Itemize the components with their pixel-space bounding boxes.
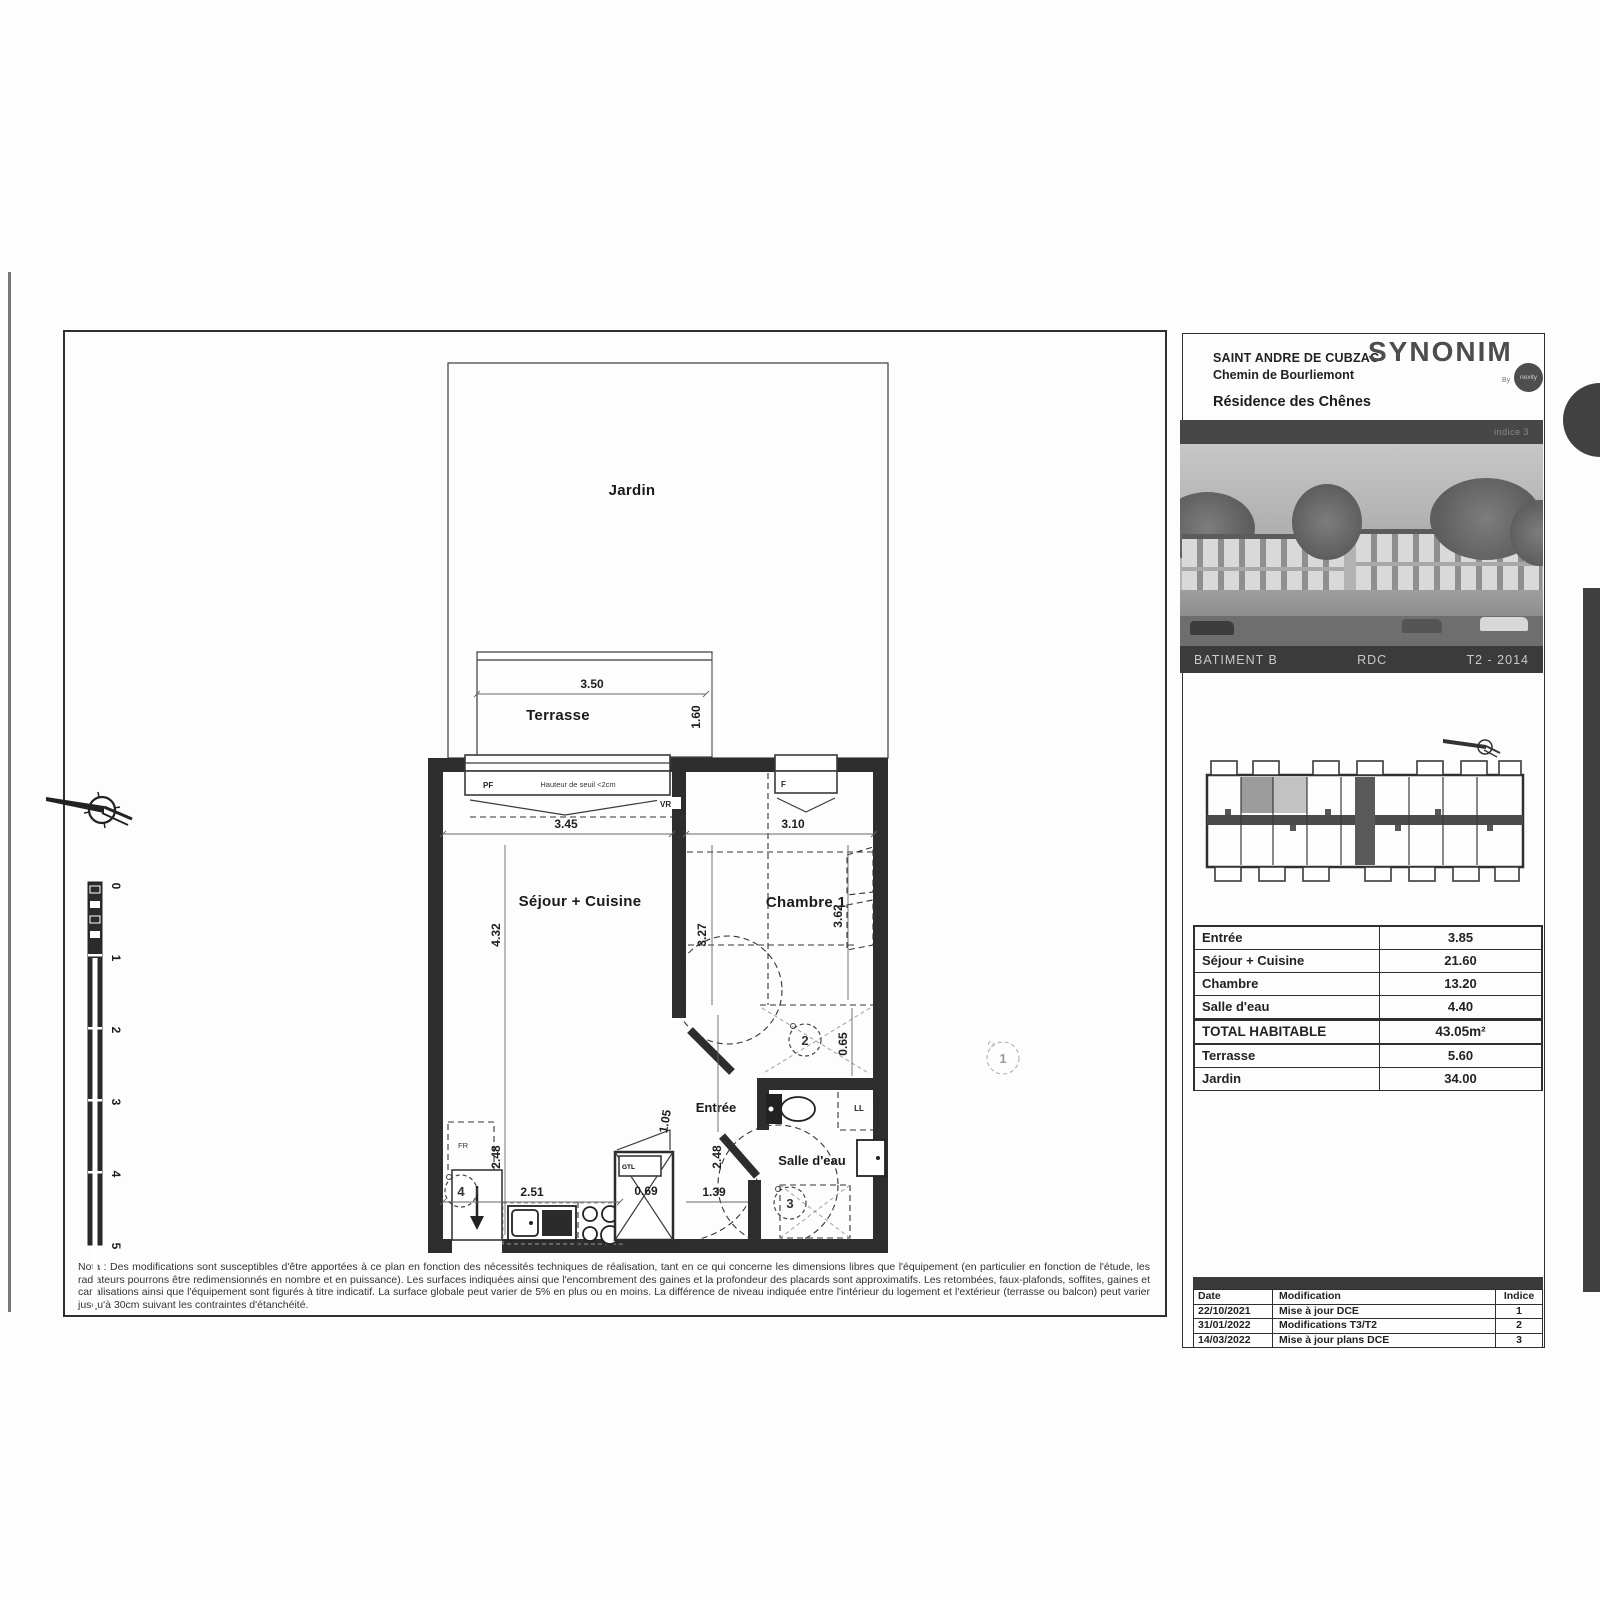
level-label: RDC [1357, 653, 1387, 667]
jardin-label: Jardin [609, 482, 656, 499]
dim-hall-height: 2.48 [710, 1145, 724, 1169]
turning-circle [674, 936, 782, 1044]
dim-hall-width: 1.39 [702, 1185, 726, 1199]
scale-tick: 4 [109, 1171, 123, 1178]
room-area: 13.20 [1380, 973, 1541, 995]
rev-indice: 3 [1496, 1334, 1542, 1348]
dim-gtl-width: 0.69 [634, 1184, 658, 1198]
pf-label: PF [483, 781, 493, 790]
dim-hall-diagonal: 1.05 [656, 1108, 674, 1134]
gtl-label: GTL [622, 1164, 635, 1171]
revision-row: 31/01/2022 Modifications T3/T2 2 [1193, 1319, 1543, 1334]
table-row: Terrasse 5.60 [1193, 1045, 1543, 1068]
table-row: Séjour + Cuisine 21.60 [1193, 950, 1543, 973]
fridge-slot: FR [448, 1122, 494, 1170]
photo-lawn [1180, 590, 1543, 618]
washbasin [857, 1140, 885, 1176]
table-row: Entrée 3.85 [1193, 927, 1543, 950]
rev-modification: Modifications T3/T2 [1273, 1319, 1496, 1333]
rev-date: 22/10/2021 [1194, 1305, 1273, 1319]
project-city: SAINT ANDRE DE CUBZAC [1213, 351, 1379, 365]
fr-label: FR [458, 1141, 469, 1150]
dim-chambre-width: 3.10 [781, 817, 805, 831]
marker-1-number: 1 [999, 1051, 1006, 1066]
col-indice: Indice [1496, 1290, 1542, 1304]
marker-4-number: 4 [457, 1184, 465, 1199]
room-area: 5.60 [1380, 1045, 1541, 1067]
ll-label: LL [854, 1104, 864, 1113]
sejour-label: Séjour + Cuisine [519, 893, 642, 910]
jardin-area: Jardin [448, 363, 888, 758]
brand-logo-text: SYNONIM [1368, 336, 1513, 368]
rev-indice: 2 [1496, 1319, 1542, 1333]
rev-modification: Mise à jour DCE [1273, 1305, 1496, 1319]
dim-kitchen-height: 2.48 [489, 1145, 503, 1169]
room-area: 21.60 [1380, 950, 1541, 972]
residence-name: Résidence des Chênes [1213, 394, 1371, 410]
room-name: Entrée [1195, 927, 1380, 949]
col-date: Date [1194, 1290, 1273, 1304]
photo-top-strip: indice 3 [1180, 420, 1543, 444]
marker-1: 1 [987, 1042, 1019, 1075]
table-row: Jardin 34.00 [1193, 1068, 1543, 1091]
salle-deau-label: Salle d'eau [778, 1153, 845, 1168]
key-plan-highlighted-unit [1241, 777, 1273, 813]
total-label: TOTAL HABITABLE [1195, 1021, 1380, 1043]
terrasse-label: Terrasse [526, 707, 590, 724]
unit-label: T2 - 2014 [1466, 653, 1529, 667]
rev-date: 31/01/2022 [1194, 1319, 1273, 1333]
room-name: Chambre [1195, 973, 1380, 995]
floor-plan-drawing: 0 1 2 3 4 5 Jardin Terrasse 3.50 1.60 [0, 0, 1165, 1600]
north-arrow-icon [46, 792, 132, 828]
vr-label: VR [660, 800, 671, 809]
scale-tick: 3 [109, 1099, 123, 1106]
photo-indice-label: indice 3 [1494, 427, 1543, 437]
room-name: Jardin [1195, 1068, 1380, 1090]
building-photo: indice 3 BATIMENT B RDC T2 - 2014 [1180, 420, 1543, 673]
table-row: Chambre 13.20 [1193, 973, 1543, 996]
scale-tick: 2 [109, 1027, 123, 1034]
scale-tick: 0 [109, 883, 123, 890]
room-name: Séjour + Cuisine [1195, 950, 1380, 972]
wardrobe [847, 847, 873, 895]
table-row-total: TOTAL HABITABLE 43.05m² [1193, 1019, 1543, 1045]
revision-header-row: Date Modification Indice [1193, 1290, 1543, 1305]
room-area: 4.40 [1380, 996, 1541, 1018]
terrasse-area: Terrasse 3.50 1.60 [474, 652, 712, 757]
window-f: F [775, 755, 837, 812]
revision-table-top-bar [1193, 1277, 1543, 1289]
scale-tick: 1 [109, 955, 123, 962]
dim-kitchen-width: 2.51 [520, 1185, 544, 1199]
area-table: Entrée 3.85 Séjour + Cuisine 21.60 Chamb… [1193, 925, 1543, 1091]
scan-ink-blob [1563, 383, 1600, 457]
scale-bar: 0 1 2 3 4 5 [88, 882, 123, 1308]
project-street: Chemin de Bourliemont [1213, 368, 1354, 382]
rev-date: 14/03/2022 [1194, 1334, 1273, 1348]
room-area: 34.00 [1380, 1068, 1541, 1090]
marker-2: 2 [789, 1024, 821, 1057]
scanned-floor-plan-sheet: SAINT ANDRE DE CUBZAC Chemin de Bourliem… [0, 0, 1600, 1600]
marker-3: 3 [774, 1187, 806, 1220]
rev-modification: Mise à jour plans DCE [1273, 1334, 1496, 1348]
photo-car [1480, 617, 1528, 631]
key-plan [1195, 715, 1535, 895]
revision-table: Date Modification Indice 22/10/2021 Mise… [1193, 1289, 1543, 1348]
f-label: F [781, 780, 786, 789]
marker-2-number: 2 [801, 1033, 808, 1048]
marker-3-number: 3 [786, 1196, 793, 1211]
seuil-label: Hauteur de seuil <2cm [540, 780, 615, 789]
col-modification: Modification [1273, 1290, 1496, 1304]
photo-tree [1292, 484, 1362, 560]
table-row: Salle d'eau 4.40 [1193, 996, 1543, 1019]
dim-terrasse-depth: 1.60 [689, 705, 703, 729]
scan-shadow-band [1583, 588, 1600, 1292]
brand-by-label: By [1502, 377, 1510, 384]
rev-indice: 1 [1496, 1305, 1542, 1319]
photo-car [1190, 621, 1234, 635]
key-plan-compass-icon [1443, 739, 1500, 757]
scale-tick: 5 [109, 1243, 123, 1250]
room-area: 3.85 [1380, 927, 1541, 949]
dim-sejour-height: 4.32 [489, 923, 503, 947]
entrance-door [452, 1170, 502, 1240]
window-pf: PF Hauteur de seuil <2cm VR [465, 755, 690, 817]
nexity-logo: nexity [1514, 363, 1543, 392]
entree-label: Entrée [696, 1100, 736, 1115]
photo-car [1402, 619, 1442, 633]
dim-terrasse-width: 3.50 [580, 677, 604, 691]
photo-caption-strip: BATIMENT B RDC T2 - 2014 [1180, 646, 1543, 673]
key-plan-building [1207, 761, 1523, 881]
batiment-label: BATIMENT B [1194, 653, 1278, 667]
shower [780, 1185, 850, 1238]
room-name: Terrasse [1195, 1045, 1380, 1067]
revision-row: 14/03/2022 Mise à jour plans DCE 3 [1193, 1334, 1543, 1349]
dim-mid-height: 3.27 [695, 923, 709, 947]
room-name: Salle d'eau [1195, 996, 1380, 1018]
wardrobe [847, 900, 873, 950]
toilet [766, 1094, 815, 1124]
total-area: 43.05m² [1380, 1021, 1541, 1043]
dim-sejour-width: 3.45 [554, 817, 578, 831]
dim-chambre-low: 0.65 [836, 1032, 850, 1056]
revision-row: 22/10/2021 Mise à jour DCE 1 [1193, 1305, 1543, 1320]
dim-chambre-height: 3.62 [831, 904, 845, 928]
